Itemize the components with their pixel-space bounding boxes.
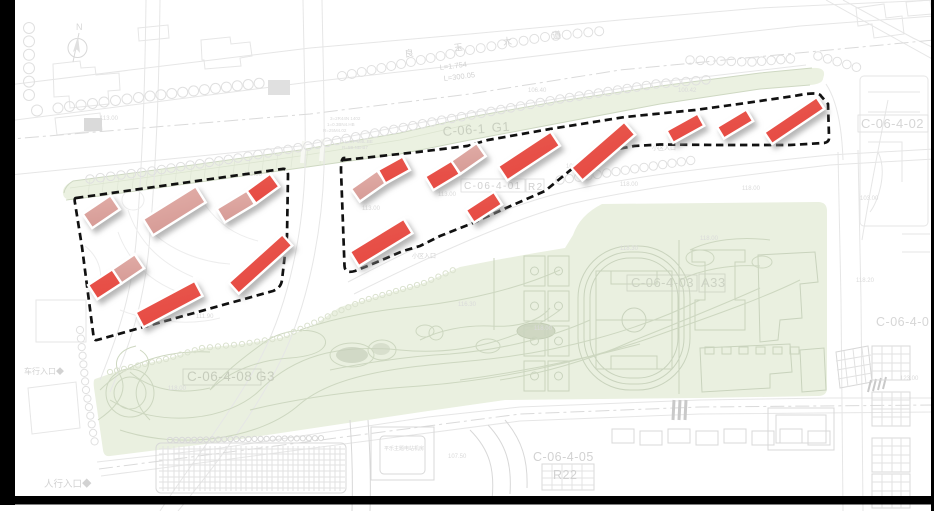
svg-text:118.00: 118.00: [534, 326, 553, 332]
svg-text:R=5B.NB-B7: R=5B.NB-B7: [342, 145, 368, 150]
svg-text:G3: G3: [256, 369, 275, 384]
svg-text:118.00: 118.00: [168, 386, 187, 392]
svg-text:118.20: 118.20: [856, 278, 875, 284]
svg-text:118.30: 118.30: [620, 246, 639, 252]
svg-text:C-06-1: C-06-1: [442, 121, 486, 139]
svg-text:C-06-4-01: C-06-4-01: [464, 181, 522, 192]
svg-text:118.00: 118.00: [620, 182, 639, 188]
svg-text:车行入口◆: 车行入口◆: [24, 366, 64, 376]
svg-text:1=0.3BN4.HB: 1=0.3BN4.HB: [327, 122, 355, 127]
svg-text:人行入口◆: 人行入口◆: [44, 478, 92, 490]
svg-text:R22: R22: [553, 468, 577, 482]
svg-text:小区入口: 小区入口: [412, 252, 436, 260]
svg-text:G1: G1: [491, 119, 510, 135]
svg-text:N: N: [76, 22, 83, 32]
svg-text:123.00: 123.00: [900, 376, 919, 382]
svg-text:103.00: 103.00: [860, 196, 879, 202]
svg-text:113.00: 113.00: [362, 206, 381, 212]
svg-text:平乐主题电站机房: 平乐主题电站机房: [384, 445, 424, 452]
svg-text:C-06-4-05: C-06-4-05: [533, 450, 594, 464]
svg-text:C-06-4-08: C-06-4-08: [187, 369, 252, 384]
svg-text:L=2F-M4L.BE: L=2F-M4L.BE: [345, 139, 373, 144]
svg-text:A33: A33: [701, 275, 726, 290]
svg-text:107.50: 107.50: [448, 454, 467, 460]
svg-text:113.00: 113.00: [438, 192, 457, 198]
svg-text:106.40: 106.40: [528, 88, 547, 94]
svg-text:116.30: 116.30: [458, 302, 477, 308]
svg-text:111.90: 111.90: [196, 314, 214, 320]
svg-text:113.00: 113.00: [100, 116, 119, 122]
svg-text:C-06-4-03: C-06-4-03: [631, 275, 694, 290]
svg-text:100.42: 100.42: [678, 88, 697, 94]
svg-text:3=2R44N 1402: 3=2R44N 1402: [330, 116, 361, 121]
svg-text:C-06-4-0: C-06-4-0: [876, 315, 929, 329]
svg-text:118.00: 118.00: [700, 236, 719, 242]
svg-text:C-06-4-02: C-06-4-02: [861, 116, 924, 131]
svg-text:R=25M4.02: R=25M4.02: [323, 128, 347, 133]
svg-text:118.00: 118.00: [742, 186, 761, 192]
